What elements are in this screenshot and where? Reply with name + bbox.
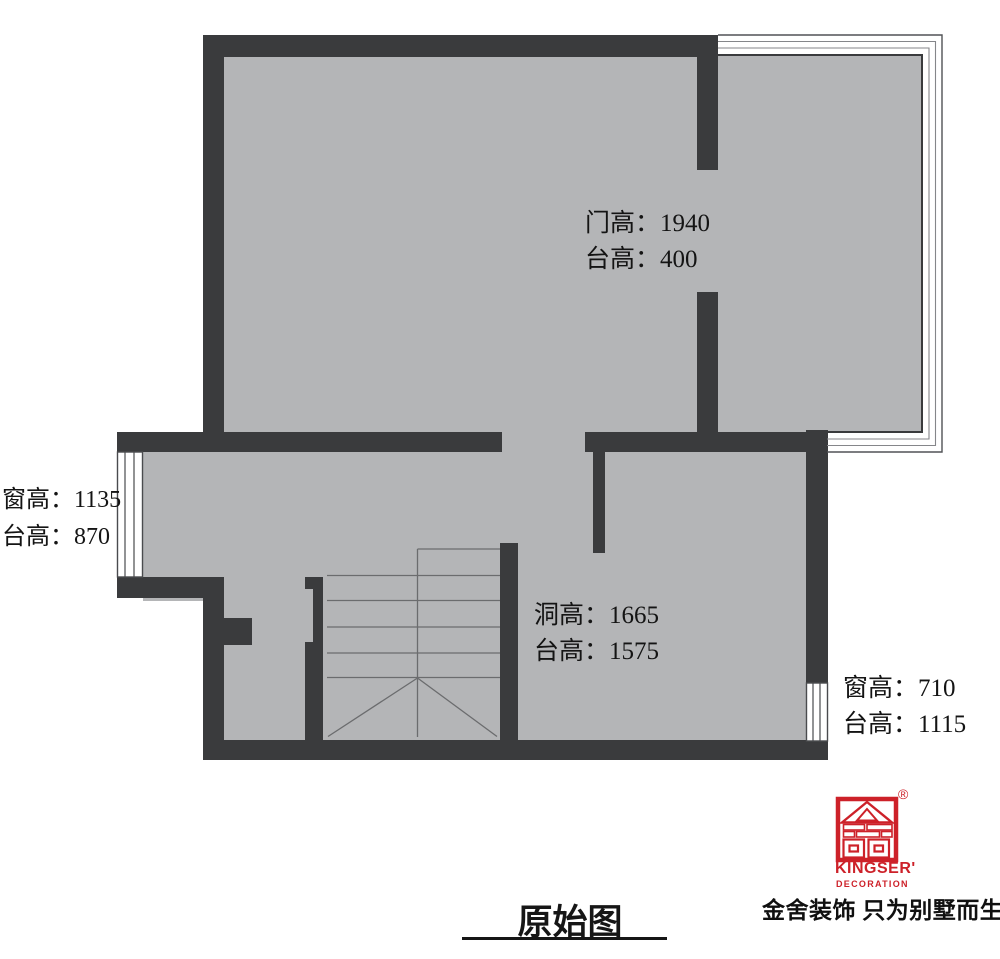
wall-stair-left-top: [305, 577, 323, 589]
left-window-height-text: 窗高：1135: [2, 482, 121, 519]
door-dimension-label: 门高：1940 台高：400: [585, 206, 710, 278]
wall-hanging-partition: [593, 452, 605, 553]
wall-middle-band-left: [117, 432, 502, 452]
logo-roof-triangle: [842, 802, 892, 823]
wall-bottom: [203, 740, 828, 760]
right-window-frame: [807, 683, 828, 741]
logo-brick-rows: [844, 825, 893, 838]
left-window-dimension-label: 窗高：1135 台高：870: [2, 482, 121, 556]
logo-brick: [844, 832, 855, 838]
logo-spiral-inner: [875, 846, 884, 852]
right-window-height-text: 窗高：710: [843, 671, 966, 707]
right-window-symbol: [807, 683, 828, 741]
floor-balcony: [718, 55, 922, 432]
left-window-sill-text: 台高：870: [2, 519, 121, 556]
floor-areas: [143, 55, 922, 741]
door-height-text: 门高：1940: [585, 206, 710, 242]
right-window-sill-text: 台高：1115: [843, 707, 966, 743]
door-sill-text: 台高：400: [585, 242, 710, 278]
logo-spiral-outer: [844, 840, 865, 858]
kingser-logo-icon: [838, 799, 896, 860]
floor-plan-page: 门高：1940 台高：400 窗高：1135 台高：870 洞高：1665 台高…: [0, 0, 1000, 959]
brand-subtitle-text: DECORATION: [836, 879, 906, 889]
wall-right-upper: [806, 430, 828, 683]
logo-brick: [882, 832, 893, 838]
wall-left-upper: [203, 35, 224, 452]
logo-spiral-outer: [869, 840, 890, 858]
logo-inner-triangle: [857, 809, 877, 821]
brand-name-text: KINGSER': [835, 860, 905, 878]
logo-brick: [844, 825, 865, 831]
wall-stair-right: [500, 543, 518, 740]
logo-spirals: [844, 840, 890, 858]
floor-wall-opening: [502, 432, 586, 452]
wall-stair-left-middle: [313, 589, 323, 642]
left-window-frame: [118, 452, 143, 577]
brand-slogan-text: 金舍装饰 只为别墅而生。: [762, 891, 1000, 925]
drawing-title-underline: [462, 937, 667, 940]
floor-plan-drawing: [0, 0, 1000, 959]
logo-brick: [857, 832, 880, 838]
right-window-dimension-label: 窗高：710 台高：1115: [843, 671, 966, 743]
registered-trademark-symbol: ®: [898, 786, 908, 802]
wall-balcony-divider-upper: [697, 57, 718, 170]
wall-balcony-divider-lower: [697, 292, 718, 432]
opening-dimension-label: 洞高：1665 台高：1575: [534, 598, 659, 670]
wall-stair-left-bottom: [305, 642, 323, 740]
opening-sill-text: 台高：1575: [534, 634, 659, 670]
left-window-symbol: [118, 452, 143, 577]
wall-left-lower: [203, 577, 224, 760]
logo-brick: [867, 825, 892, 831]
wall-stub-pier: [223, 618, 252, 645]
wall-middle-band-right: [585, 432, 828, 452]
logo-spiral-inner: [850, 846, 859, 852]
floor-lower-room-upper: [143, 450, 807, 601]
wall-under-left-window: [117, 577, 203, 598]
wall-top: [203, 35, 718, 57]
opening-height-text: 洞高：1665: [534, 598, 659, 634]
